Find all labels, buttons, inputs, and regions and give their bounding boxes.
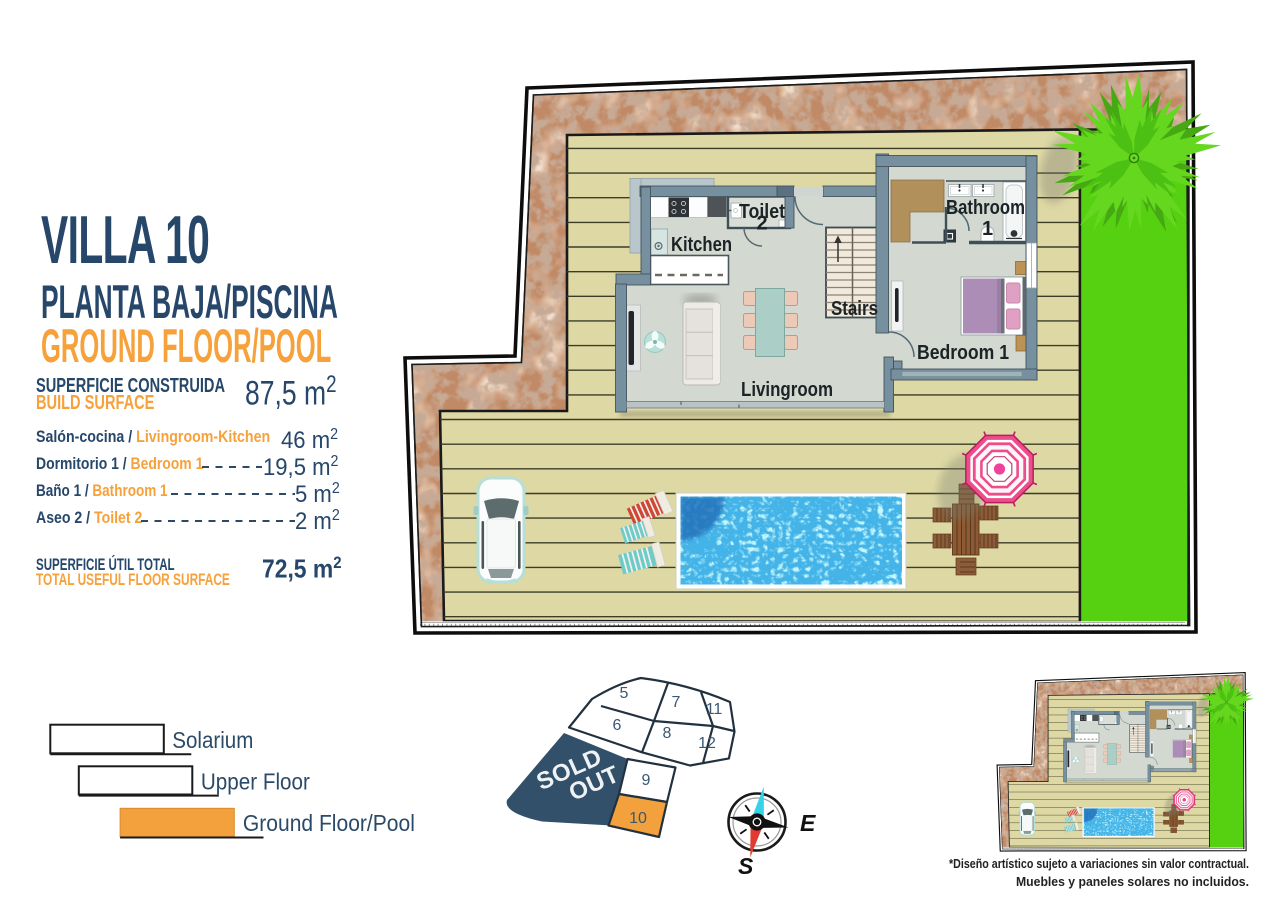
svg-text:E: E: [800, 810, 816, 836]
svg-text:9: 9: [642, 772, 651, 789]
svg-text:11: 11: [706, 701, 723, 718]
svg-text:Kitchen: Kitchen: [671, 234, 732, 256]
svg-text:Upper Floor: Upper Floor: [201, 769, 310, 795]
svg-text:*Diseño artístico sujeto a var: *Diseño artístico sujeto a variaciones s…: [949, 856, 1249, 871]
svg-text:5: 5: [620, 685, 629, 702]
svg-text:10: 10: [629, 810, 647, 827]
svg-text:8: 8: [663, 725, 672, 742]
svg-text:Stairs: Stairs: [831, 298, 878, 320]
svg-text:7: 7: [672, 694, 681, 711]
svg-text:Muebles y paneles solares no i: Muebles y paneles solares no incluidos.: [1016, 874, 1249, 889]
svg-text:2: 2: [757, 213, 768, 235]
svg-text:6: 6: [613, 717, 622, 734]
svg-text:12: 12: [698, 735, 716, 752]
svg-text:Bathroom: Bathroom: [946, 197, 1025, 219]
svg-text:Bedroom 1: Bedroom 1: [917, 342, 1009, 364]
svg-text:S: S: [738, 853, 754, 879]
svg-text:1: 1: [982, 218, 993, 240]
svg-text:Ground Floor/Pool: Ground Floor/Pool: [243, 810, 415, 836]
svg-text:Livingroom: Livingroom: [741, 379, 833, 401]
svg-text:Solarium: Solarium: [172, 727, 253, 753]
